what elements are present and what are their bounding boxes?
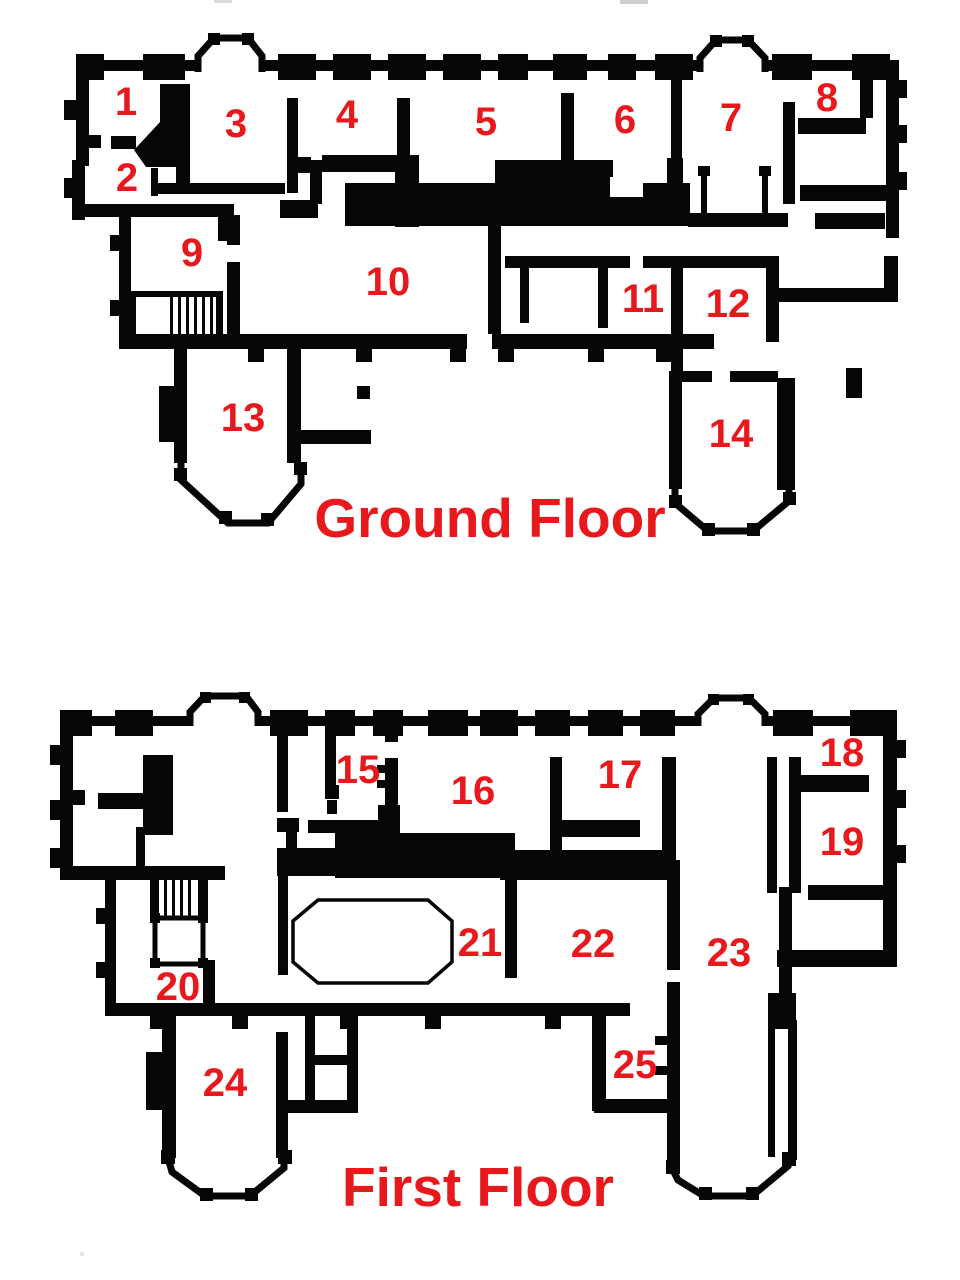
room-label-18: 18	[820, 731, 865, 775]
bay-window-icon	[700, 40, 765, 72]
room-label-12: 12	[706, 282, 751, 326]
room-label-6: 6	[614, 98, 636, 142]
room-label-15: 15	[336, 748, 381, 792]
stair-mass	[134, 84, 190, 190]
first-south-wing-24	[146, 1013, 358, 1201]
room-label-23: 23	[707, 931, 752, 975]
first-floor-title: First Floor	[342, 1156, 614, 1218]
room-label-8: 8	[816, 76, 838, 120]
bay-window-icon	[181, 463, 301, 523]
room-label-17: 17	[598, 753, 643, 797]
room-label-2: 2	[116, 156, 138, 200]
room-label-21: 21	[458, 921, 503, 965]
room-label-20: 20	[156, 965, 201, 1009]
room-label-1: 1	[115, 80, 137, 124]
room-label-22: 22	[571, 922, 616, 966]
ground-floor-plan: 1 2 3 4 5 6 7 8 9 10 11 12 13 14 Ground …	[64, 33, 907, 549]
room-label-10: 10	[366, 260, 411, 304]
room-label-19: 19	[820, 820, 865, 864]
bay-window-icon	[168, 1158, 284, 1196]
ground-stair	[128, 291, 223, 340]
room-label-25: 25	[613, 1043, 658, 1087]
room-label-11: 11	[622, 277, 664, 321]
first-floor-plan: 15 16 17 18 19 20 21 22 23 24 25 First F…	[50, 692, 906, 1218]
room-label-5: 5	[475, 100, 497, 144]
room-label-4: 4	[336, 93, 359, 137]
room-label-16: 16	[451, 769, 496, 813]
room-label-9: 9	[181, 231, 203, 275]
stair-well	[155, 918, 203, 964]
floorplan-page: 1 2 3 4 5 6 7 8 9 10 11 12 13 14 Ground …	[0, 0, 960, 1280]
room-label-3: 3	[225, 102, 247, 146]
gallery-opening	[293, 900, 452, 983]
room-label-24: 24	[203, 1061, 248, 1105]
bay-window-icon	[673, 1156, 788, 1196]
floorplan-svg: 1 2 3 4 5 6 7 8 9 10 11 12 13 14 Ground …	[0, 0, 960, 1280]
room-label-13: 13	[221, 396, 266, 440]
ground-floor-title: Ground Floor	[314, 487, 665, 549]
bay-window-icon	[675, 489, 789, 531]
first-room-25-and-gallery-bay	[592, 1008, 796, 1200]
room-label-7: 7	[720, 96, 742, 140]
first-stair	[150, 874, 208, 968]
room-label-14: 14	[709, 412, 754, 456]
